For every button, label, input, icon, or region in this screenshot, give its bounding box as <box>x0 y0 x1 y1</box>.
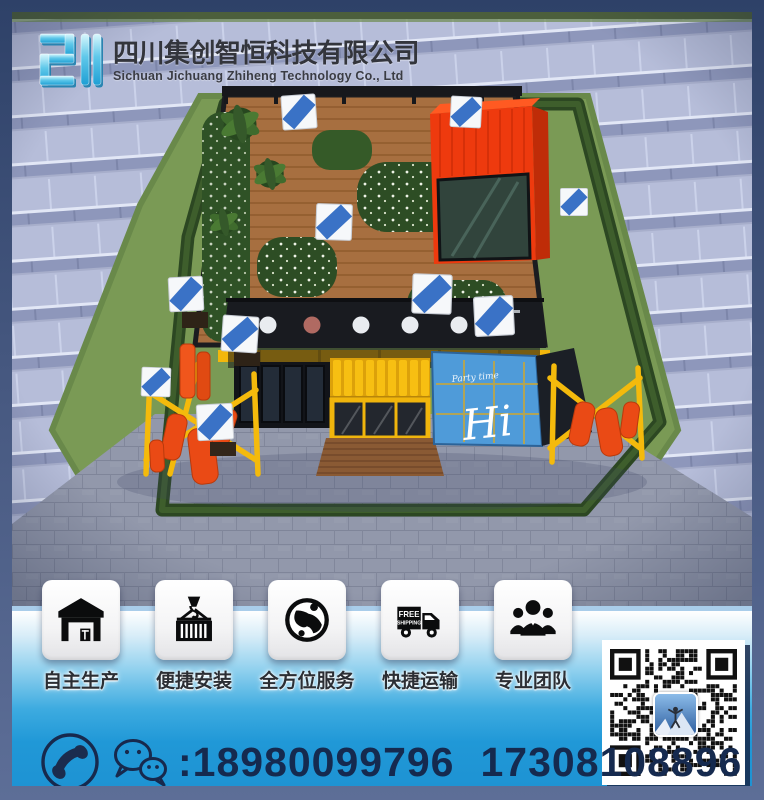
globe-icon <box>282 595 332 645</box>
feature-label-production: 自主生产 <box>43 666 119 693</box>
feature-label-shipping: 快捷运输 <box>382 666 458 693</box>
phone-numbers: : 18980099796 17308108896 <box>178 739 742 786</box>
phone-number-2: 17308108896 <box>480 739 742 786</box>
phone-separator: : <box>178 739 193 786</box>
team-icon <box>508 595 558 645</box>
wechat-icon <box>110 734 170 786</box>
feature-card-service <box>268 580 346 660</box>
truck-badge-line2: SHIPPING <box>397 621 421 627</box>
container-building-render: Party time Hi <box>12 12 752 606</box>
feature-card-shipping: FREE SHIPPING <box>381 580 459 660</box>
feature-label-installation: 便捷安装 <box>156 666 232 693</box>
poster-content: Party time Hi <box>12 12 752 786</box>
brand-text: 四川集创智恒科技有限公司 Sichuan Jichuang Zhiheng Te… <box>113 39 419 84</box>
render-scene: Party time Hi <box>12 12 752 606</box>
feature-card-production <box>42 580 120 660</box>
feature-label-service: 全方位服务 <box>259 666 354 693</box>
ad-poster: Party time Hi <box>0 0 764 800</box>
company-name-cn: 四川集创智恒科技有限公司 <box>113 39 419 69</box>
phone-number-1: 18980099796 <box>193 739 455 786</box>
company-name-en: Sichuan Jichuang Zhiheng Technology Co.,… <box>113 69 419 83</box>
brand-header: 四川集创智恒科技有限公司 Sichuan Jichuang Zhiheng Te… <box>38 32 419 90</box>
warehouse-icon <box>56 595 106 645</box>
feature-card-installation <box>155 580 233 660</box>
truck-badge-line1: FREE <box>399 610 420 619</box>
container-hook-icon <box>169 595 219 645</box>
truck-icon: FREE SHIPPING <box>395 595 445 645</box>
phone-icon <box>38 730 102 786</box>
feature-card-team <box>494 580 572 660</box>
feature-label-team: 专业团队 <box>495 666 571 693</box>
contact-bar: : 18980099796 17308108896 <box>38 724 742 786</box>
jichuang-logo-mark <box>38 32 104 90</box>
